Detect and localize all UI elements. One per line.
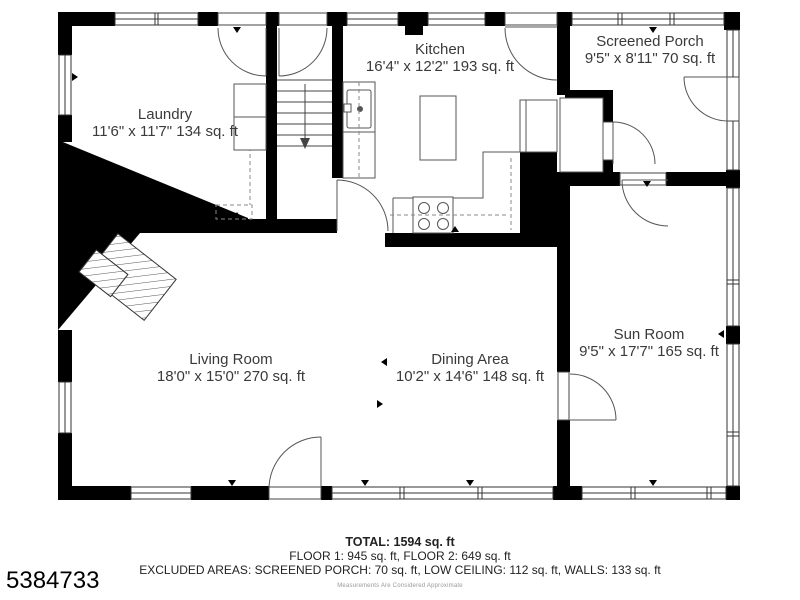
window-icon [727, 188, 739, 326]
window-icon [572, 13, 724, 25]
room-dims: 10'2" x 14'6" 148 sq. ft [396, 368, 544, 385]
mls-number: 5384733 [6, 567, 99, 595]
windows [59, 13, 739, 499]
floor-plan-page: Laundry 11'6" x 11'7" 134 sq. ft Kitchen… [0, 0, 800, 600]
door-swing-icon [337, 180, 388, 231]
window-icon [347, 13, 398, 25]
door-openings [218, 13, 739, 499]
room-label-living-room: Living Room 18'0" x 15'0" 270 sq. ft [157, 351, 305, 385]
counter [393, 152, 520, 233]
door-swing-icon [570, 374, 616, 420]
window-icon [727, 121, 739, 170]
total-area: TOTAL: 1594 sq. ft [0, 536, 800, 549]
window-post [726, 326, 740, 344]
kitchen-island [420, 96, 456, 160]
room-dims: 18'0" x 15'0" 270 sq. ft [157, 368, 305, 385]
room-name: Sun Room [579, 326, 719, 343]
stairs-icon [277, 80, 332, 149]
washer-dryer-icon [234, 84, 266, 150]
walls [58, 12, 740, 500]
kitchen-porch-divider [557, 12, 570, 95]
excluded-areas: EXCLUDED AREAS: SCREENED PORCH: 70 sq. f… [0, 564, 800, 577]
window-icon [727, 344, 739, 486]
wall-markers [72, 27, 724, 486]
dining-sunroom-wall-upper [557, 186, 570, 372]
dining-sunroom-wall-lower [557, 420, 570, 486]
hall-kitchen-wall [332, 26, 343, 178]
window-icon [59, 382, 71, 433]
room-dims: 16'4" x 12'2" 193 sq. ft [366, 58, 514, 75]
room-dims: 11'6" x 11'7" 134 sq. ft [92, 123, 238, 140]
room-name: Dining Area [396, 351, 544, 368]
area-summary: TOTAL: 1594 sq. ft FLOOR 1: 945 sq. ft, … [0, 536, 800, 590]
window-icon [332, 487, 553, 499]
room-dims: 9'5" x 17'7" 165 sq. ft [579, 343, 719, 360]
room-name: Laundry [92, 106, 238, 123]
pantry-closet [520, 100, 557, 152]
room-label-sun-room: Sun Room 9'5" x 17'7" 165 sq. ft [579, 326, 719, 360]
doors [218, 27, 728, 489]
room-dims: 9'5" x 8'11" 70 sq. ft [585, 50, 715, 67]
door-swing-icon [269, 437, 321, 489]
room-name: Living Room [157, 351, 305, 368]
room-label-dining-area: Dining Area 10'2" x 14'6" 148 sq. ft [396, 351, 544, 385]
pantry-wall-block [520, 152, 557, 233]
window-icon [131, 487, 191, 499]
room-label-laundry: Laundry 11'6" x 11'7" 134 sq. ft [92, 106, 238, 140]
measurement-disclaimer: Measurements Are Considered Approximate [0, 582, 800, 590]
window-icon [428, 13, 485, 25]
room-name: Kitchen [366, 41, 514, 58]
window-icon [59, 55, 71, 115]
laundry-hall-wall [266, 26, 277, 219]
window-icon [115, 13, 198, 25]
window-icon [582, 487, 726, 499]
chimney-stub [405, 12, 423, 35]
door-swing-icon [613, 122, 655, 164]
floor-areas: FLOOR 1: 945 sq. ft, FLOOR 2: 649 sq. ft [0, 550, 800, 563]
room-label-kitchen: Kitchen 16'4" x 12'2" 193 sq. ft [366, 41, 514, 75]
laundry-bottom-wall [148, 219, 337, 233]
door-swing-icon [684, 77, 728, 121]
floor-plan-drawing [0, 0, 800, 600]
window-icon [727, 30, 739, 77]
porch-sunroom-wall-right [666, 172, 740, 186]
door-swing-icon [622, 180, 668, 226]
door-swing-icon [218, 28, 266, 76]
door-swing-icon [279, 28, 327, 76]
room-name: Screened Porch [585, 33, 715, 50]
vestibule [560, 98, 603, 172]
kitchen-bottom-wall [385, 233, 570, 247]
room-label-screened-porch: Screened Porch 9'5" x 8'11" 70 sq. ft [585, 33, 715, 67]
porch-sunroom-wall-left [557, 172, 620, 186]
